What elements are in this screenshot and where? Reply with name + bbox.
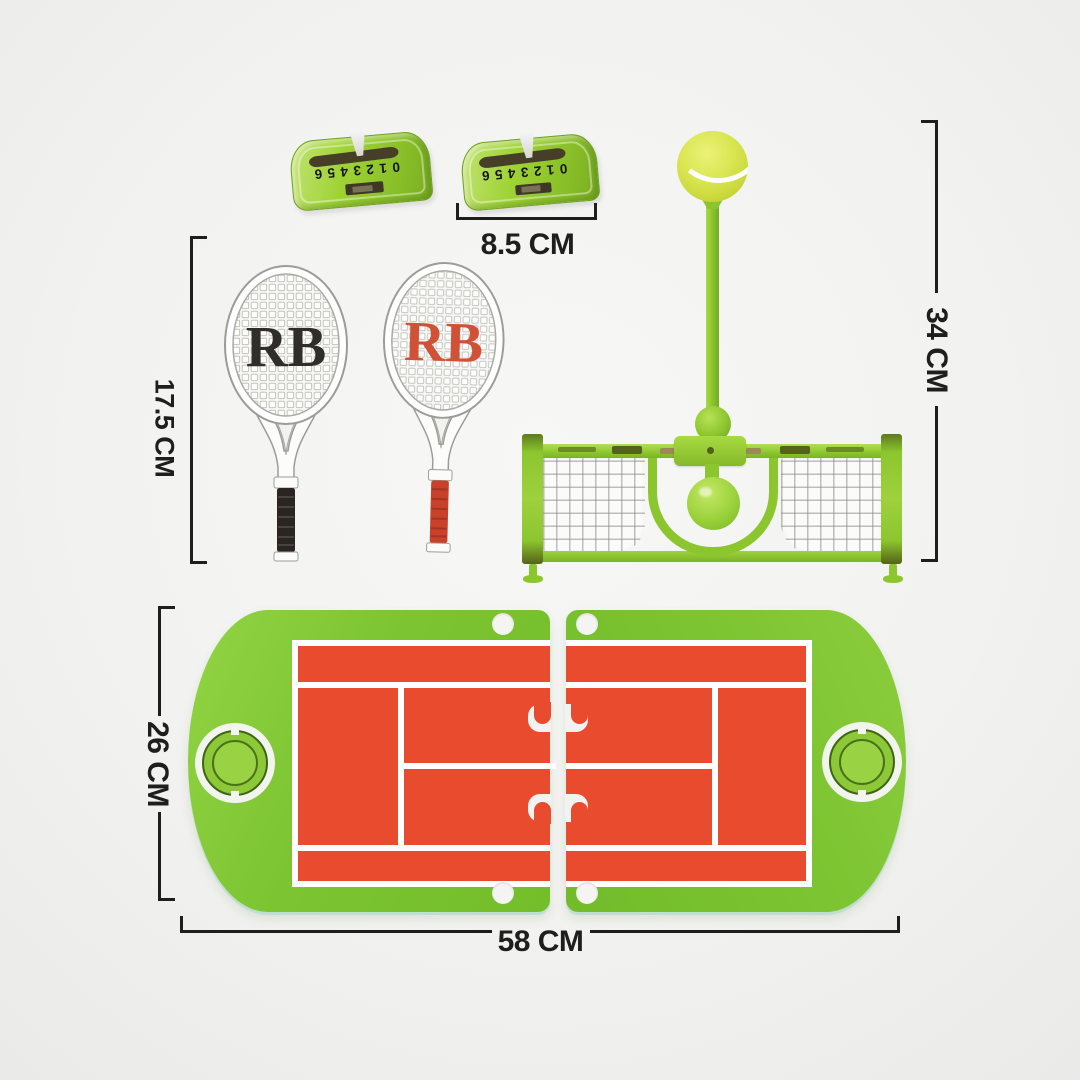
court-alley-line-top xyxy=(298,682,550,688)
socket-center xyxy=(212,740,258,786)
racket-red: RB xyxy=(375,260,509,555)
dim-label-board-depth: 26 CM xyxy=(140,721,174,807)
net-mesh-right xyxy=(781,457,882,553)
court-alley-line-bottom xyxy=(566,845,806,851)
net-bar-pin xyxy=(746,448,761,454)
joint-tab xyxy=(534,802,551,824)
dim-line xyxy=(158,606,161,716)
dim-line xyxy=(190,236,193,564)
socket-notch xyxy=(858,727,866,734)
dim-line xyxy=(456,217,597,220)
dim-line xyxy=(935,406,938,562)
net-bar-clip xyxy=(612,446,642,454)
dim-tick xyxy=(921,559,938,562)
dim-label-racket-length: 17.5 CM xyxy=(149,379,180,478)
dim-line xyxy=(180,930,492,933)
dim-line xyxy=(935,120,938,293)
racket-black: RB xyxy=(222,265,350,563)
dim-tick xyxy=(897,916,900,933)
score-counter-left: 0123456 xyxy=(288,130,434,212)
net-bar-groove xyxy=(826,447,864,452)
dim-line xyxy=(590,930,900,933)
board-hole xyxy=(492,613,514,635)
board-hole xyxy=(576,882,598,904)
joint-tab xyxy=(571,802,588,824)
court-alley-line-bottom xyxy=(298,845,550,851)
court-board-left-half xyxy=(188,610,550,912)
court-left xyxy=(292,640,550,887)
racket-logo: RB xyxy=(403,310,484,375)
tennis-ball xyxy=(677,131,748,202)
dim-line xyxy=(158,812,161,901)
court-center-line xyxy=(404,763,556,769)
net-bar-clip xyxy=(780,446,810,454)
net-bar-groove xyxy=(558,447,596,452)
racket-butt-cap xyxy=(426,543,450,552)
joint-tab xyxy=(534,702,551,724)
court-right xyxy=(566,640,812,887)
net-post-left xyxy=(522,434,543,564)
racket-collar xyxy=(274,477,298,488)
net-mesh-left xyxy=(543,457,645,553)
dim-tick xyxy=(158,898,175,901)
court-center-line xyxy=(566,763,712,769)
dim-label-trainer-height: 34 CM xyxy=(919,307,953,393)
net-foot-base xyxy=(523,575,543,583)
product-dimension-photo: 0123456 0123456 RB xyxy=(0,0,1080,1080)
score-counter-right: 0123456 xyxy=(459,132,600,212)
net-post-right xyxy=(881,434,902,564)
trainer-pole xyxy=(706,206,719,414)
dim-label-counter-width: 8.5 CM xyxy=(445,228,610,262)
board-hole xyxy=(576,613,598,635)
racket-butt-cap xyxy=(274,552,298,561)
socket-notch xyxy=(231,728,239,735)
net-foot-base xyxy=(883,575,903,583)
court-alley-line-top xyxy=(566,682,806,688)
clamp-pin xyxy=(707,447,714,454)
joint-tab xyxy=(571,702,588,724)
board-socket-right xyxy=(822,722,902,802)
racket-collar xyxy=(428,469,452,480)
dim-tick xyxy=(594,203,597,220)
socket-notch xyxy=(231,791,239,798)
socket-notch xyxy=(858,790,866,797)
dim-tick xyxy=(190,561,207,564)
socket-center xyxy=(839,739,885,785)
court-board-right-half xyxy=(566,610,906,912)
board-socket-left xyxy=(195,723,275,803)
court-service-line xyxy=(712,682,718,851)
racket-logo: RB xyxy=(246,314,327,379)
board-hole xyxy=(492,882,514,904)
weight-ball xyxy=(687,477,740,530)
net-bar-pin xyxy=(660,448,675,454)
